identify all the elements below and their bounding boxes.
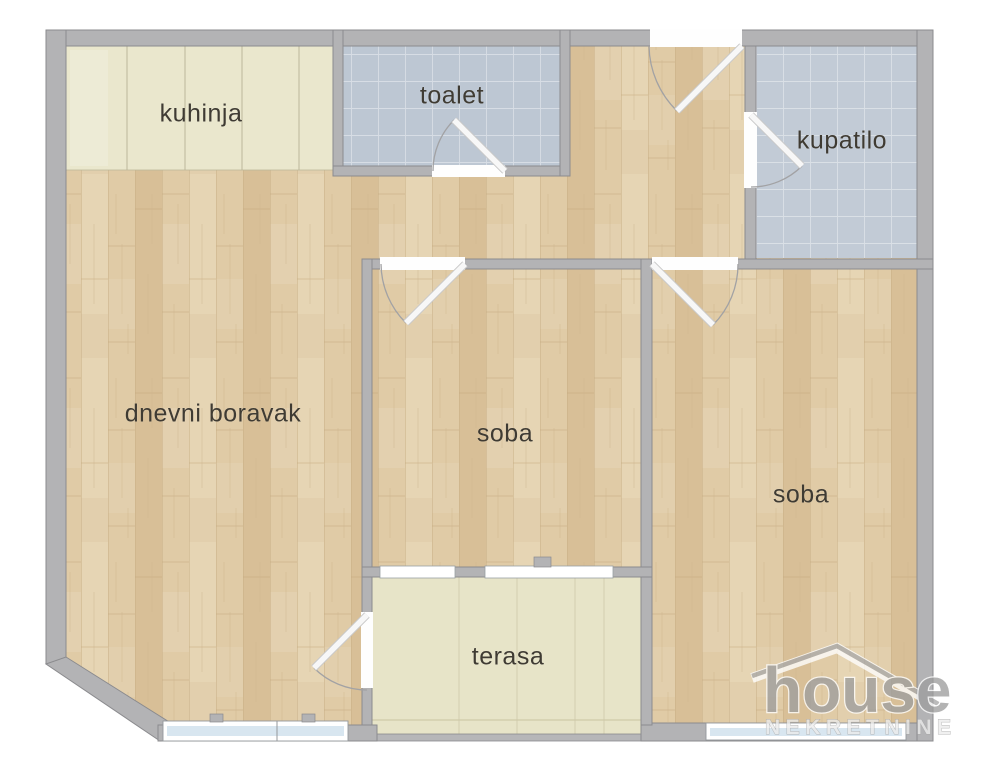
wall-left: [46, 30, 66, 664]
room-label-toalet: toalet: [420, 82, 484, 111]
wall-soba-divider: [641, 259, 652, 725]
room-label-kuhinja: kuhinja: [160, 100, 243, 129]
watermark: house NEKRETNINE: [752, 646, 957, 739]
window-sill-tick-3: [534, 557, 551, 567]
wall-toalet-right: [560, 30, 570, 176]
soba2-door-opening: [652, 257, 738, 270]
toalet-door-opening: [432, 165, 505, 177]
wall-right: [917, 30, 933, 741]
soba1-door-opening: [380, 257, 465, 270]
terasa-window-1: [380, 566, 455, 578]
wall-top: [46, 30, 933, 46]
terasa-window-2: [485, 566, 613, 578]
entrance-opening: [650, 29, 742, 47]
wall-kitchen-toalet: [333, 30, 343, 176]
window-sill-tick-1: [210, 714, 223, 722]
living-room-window: [163, 721, 348, 741]
room-label-soba-1: soba: [477, 420, 533, 449]
room-label-kupatilo: kupatilo: [797, 127, 887, 156]
watermark-tagline-text: NEKRETNINE: [765, 716, 957, 739]
room-label-dnevni-boravak: dnevni boravak: [125, 400, 302, 429]
room-label-soba-2: soba: [773, 481, 829, 510]
floor-plan: house NEKRETNINE kuhinja toalet kupatilo…: [0, 0, 982, 768]
room-label-terasa: terasa: [472, 643, 544, 672]
window-sill-tick-2: [302, 714, 315, 722]
terasa-parapet: [372, 734, 641, 741]
